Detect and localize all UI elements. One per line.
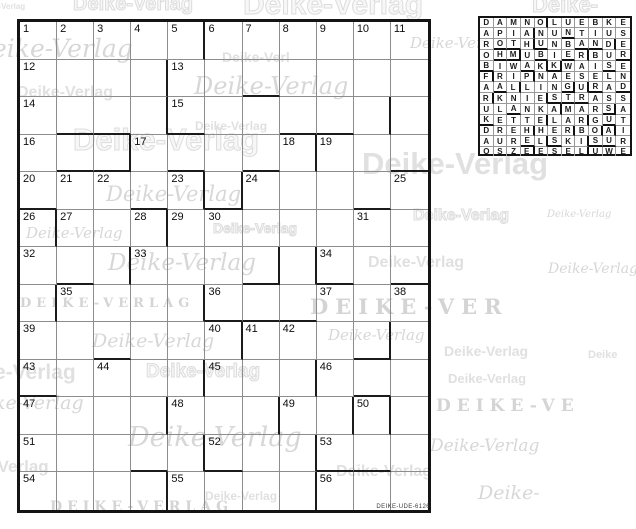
solution-letter: A bbox=[483, 137, 489, 146]
solution-letter: N bbox=[538, 29, 544, 38]
solution-cell: U bbox=[548, 28, 562, 39]
solution-cell: A bbox=[548, 72, 562, 82]
puzzle-cell[interactable]: 47 bbox=[20, 397, 57, 435]
solution-letter: I bbox=[526, 94, 528, 103]
solution-cell: A bbox=[603, 126, 617, 136]
solution-cell: O bbox=[480, 147, 494, 156]
solution-letter: A bbox=[483, 83, 489, 92]
puzzle-cell[interactable] bbox=[243, 435, 280, 473]
puzzle-cell[interactable] bbox=[168, 360, 205, 398]
solution-letter: R bbox=[565, 126, 571, 135]
puzzle-cell[interactable] bbox=[57, 472, 94, 510]
puzzle-cell[interactable]: 20 bbox=[20, 172, 57, 210]
solution-cell: E bbox=[535, 147, 549, 156]
puzzle-cell[interactable] bbox=[57, 397, 94, 435]
puzzle-cell[interactable] bbox=[354, 285, 391, 323]
solution-letter: E bbox=[565, 72, 570, 81]
puzzle-cell[interactable]: 5 bbox=[168, 22, 205, 60]
cell-number: 34 bbox=[320, 248, 332, 260]
puzzle-cell[interactable] bbox=[205, 97, 242, 135]
puzzle-cell[interactable]: 49 bbox=[280, 397, 317, 435]
solution-cell: E bbox=[535, 115, 549, 126]
solution-cell: I bbox=[548, 50, 562, 61]
puzzle-cell[interactable]: 22 bbox=[94, 172, 131, 210]
solution-letter: G bbox=[565, 82, 571, 91]
solution-cell: Z bbox=[507, 147, 521, 156]
puzzle-cell[interactable] bbox=[391, 60, 428, 98]
puzzle-cell[interactable]: 15 bbox=[168, 97, 205, 135]
solution-letter: L bbox=[607, 72, 612, 81]
puzzle-cell[interactable]: 28 bbox=[131, 210, 168, 248]
cell-number: 42 bbox=[283, 323, 295, 335]
solution-letter: S bbox=[552, 136, 557, 145]
puzzle-cell[interactable] bbox=[243, 397, 280, 435]
puzzle-cell[interactable]: 46 bbox=[317, 360, 354, 398]
solution-letter: M bbox=[565, 105, 572, 114]
solution-letter: K bbox=[497, 94, 503, 103]
puzzle-cell[interactable] bbox=[391, 247, 428, 285]
solution-letter: A bbox=[606, 83, 612, 92]
solution-letter: N bbox=[511, 94, 517, 103]
solution-cell: R bbox=[494, 126, 508, 136]
solution-cell: N bbox=[562, 28, 576, 39]
watermark-text: Deike-Verlag bbox=[444, 344, 528, 358]
cell-number: 7 bbox=[246, 23, 252, 35]
watermark-text: DEIKE-VE bbox=[436, 398, 580, 415]
puzzle-cell[interactable]: 30 bbox=[205, 210, 242, 248]
puzzle-cell[interactable]: 50 bbox=[354, 397, 391, 435]
puzzle-cell[interactable] bbox=[168, 135, 205, 173]
solution-cell: H bbox=[535, 126, 549, 136]
puzzle-cell[interactable]: 12 bbox=[20, 60, 57, 98]
solution-letter: E bbox=[538, 116, 543, 125]
solution-letter: U bbox=[552, 29, 558, 38]
puzzle-cell[interactable] bbox=[354, 135, 391, 173]
solution-letter: E bbox=[621, 40, 626, 49]
watermark-text: Deike-Verlag bbox=[448, 372, 526, 385]
solution-letter: R bbox=[497, 126, 503, 135]
puzzle-cell[interactable] bbox=[131, 360, 168, 398]
solution-cell: B bbox=[480, 61, 494, 72]
puzzle-cell[interactable]: 33 bbox=[131, 247, 168, 285]
puzzle-cell[interactable]: 40 bbox=[205, 322, 242, 360]
puzzle-cell[interactable]: 16 bbox=[20, 135, 57, 173]
puzzle-cell[interactable]: 11 bbox=[391, 22, 428, 60]
solution-letter: A bbox=[511, 104, 517, 113]
puzzle-cell[interactable] bbox=[94, 97, 131, 135]
solution-letter: O bbox=[537, 18, 543, 27]
solution-letter: K bbox=[551, 61, 557, 70]
solution-letter: K bbox=[565, 137, 571, 146]
puzzle-cell[interactable]: 13 bbox=[168, 60, 205, 98]
solution-letter: R bbox=[483, 94, 489, 103]
solution-letter: W bbox=[605, 147, 613, 156]
solution-cell: R bbox=[589, 104, 603, 115]
puzzle-cell[interactable] bbox=[243, 97, 280, 135]
puzzle-cell[interactable] bbox=[317, 210, 354, 248]
solution-cell: N bbox=[521, 18, 535, 28]
solution-cell: M bbox=[507, 50, 521, 61]
puzzle-cell[interactable]: 44 bbox=[94, 360, 131, 398]
puzzle-cell[interactable] bbox=[317, 322, 354, 360]
solution-letter: R bbox=[483, 40, 489, 49]
puzzle-cell[interactable] bbox=[20, 285, 57, 323]
puzzle-cell[interactable]: 43 bbox=[20, 360, 57, 398]
solution-cell: S bbox=[494, 147, 508, 156]
solution-letter: A bbox=[606, 126, 612, 135]
solution-letter: U bbox=[524, 51, 530, 60]
puzzle-cell[interactable]: 35 bbox=[57, 285, 94, 323]
puzzle-cell[interactable] bbox=[354, 247, 391, 285]
puzzle-cell[interactable]: 25 bbox=[391, 172, 428, 210]
puzzle-cell[interactable] bbox=[94, 135, 131, 173]
solution-cell: K bbox=[562, 136, 576, 147]
watermark-text: Deike-Verlag bbox=[430, 438, 539, 455]
puzzle-cell[interactable] bbox=[57, 247, 94, 285]
puzzle-cell[interactable]: 18 bbox=[280, 135, 317, 173]
solution-letter: U bbox=[578, 83, 584, 92]
puzzle-cell[interactable] bbox=[94, 472, 131, 510]
puzzle-cell[interactable]: 32 bbox=[20, 247, 57, 285]
puzzle-cell[interactable] bbox=[280, 60, 317, 98]
solution-letter: L bbox=[579, 147, 584, 156]
puzzle-cell[interactable]: 53 bbox=[317, 435, 354, 473]
puzzle-cell[interactable] bbox=[317, 397, 354, 435]
solution-letter: P bbox=[524, 72, 529, 81]
puzzle-cell[interactable]: 51 bbox=[20, 435, 57, 473]
cell-number: 16 bbox=[23, 136, 35, 148]
puzzle-cell[interactable] bbox=[391, 397, 428, 435]
cell-number: 21 bbox=[60, 173, 72, 185]
puzzle-cell[interactable]: 17 bbox=[131, 135, 168, 173]
solution-grid: DAMNOLUEBKEAPIANUNTIUSROTHUNBANDEOHMUBIE… bbox=[478, 16, 632, 156]
puzzle-cell[interactable]: 14 bbox=[20, 97, 57, 135]
puzzle-cell[interactable]: 7 bbox=[243, 22, 280, 60]
solution-letter: D bbox=[483, 126, 489, 135]
puzzle-cell[interactable] bbox=[280, 285, 317, 323]
puzzle-cell[interactable] bbox=[205, 247, 242, 285]
solution-letter: A bbox=[524, 61, 530, 70]
puzzle-cell[interactable]: 41 bbox=[243, 322, 280, 360]
puzzle-cell[interactable] bbox=[243, 135, 280, 173]
puzzle-cell[interactable] bbox=[391, 135, 428, 173]
puzzle-cell[interactable]: 34 bbox=[317, 247, 354, 285]
solution-cell: A bbox=[589, 93, 603, 104]
solution-cell: P bbox=[521, 72, 535, 82]
puzzle-cell[interactable] bbox=[94, 397, 131, 435]
solution-cell: M bbox=[507, 18, 521, 28]
solution-letter: A bbox=[524, 29, 530, 38]
solution-cell: I bbox=[616, 126, 630, 136]
solution-cell: T bbox=[616, 115, 630, 126]
solution-cell: I bbox=[507, 28, 521, 39]
puzzle-cell[interactable] bbox=[94, 247, 131, 285]
solution-letter: A bbox=[552, 72, 558, 81]
puzzle-cell[interactable]: 19 bbox=[317, 135, 354, 173]
puzzle-cell[interactable] bbox=[391, 322, 428, 360]
cell-number: 35 bbox=[60, 286, 72, 298]
solution-letter: N bbox=[552, 83, 558, 92]
puzzle-cell[interactable] bbox=[57, 360, 94, 398]
puzzle-cell[interactable] bbox=[131, 60, 168, 98]
solution-cell: U bbox=[480, 104, 494, 115]
cell-number: 54 bbox=[23, 473, 35, 485]
puzzle-cell[interactable] bbox=[280, 360, 317, 398]
solution-cell: D bbox=[480, 18, 494, 28]
puzzle-cell[interactable] bbox=[280, 472, 317, 510]
puzzle-cell[interactable] bbox=[280, 435, 317, 473]
puzzle-cell[interactable] bbox=[131, 435, 168, 473]
puzzle-cell[interactable]: 39 bbox=[20, 322, 57, 360]
solution-cell: A bbox=[603, 82, 617, 93]
puzzle-cell[interactable]: 24 bbox=[243, 172, 280, 210]
cell-number: 40 bbox=[208, 323, 220, 335]
solution-cell: D bbox=[603, 39, 617, 50]
solution-cell: A bbox=[494, 18, 508, 28]
solution-letter: A bbox=[497, 18, 503, 27]
puzzle-cell[interactable]: 9 bbox=[317, 22, 354, 60]
puzzle-cell[interactable] bbox=[280, 97, 317, 135]
solution-letter: I bbox=[512, 72, 514, 81]
puzzle-cell[interactable] bbox=[317, 60, 354, 98]
puzzle-cell[interactable]: 37 bbox=[317, 285, 354, 323]
watermark-text: Deike- bbox=[532, 0, 598, 16]
solution-cell: O bbox=[480, 50, 494, 61]
solution-letter: E bbox=[497, 116, 502, 125]
solution-letter: B bbox=[579, 126, 585, 135]
solution-cell: I bbox=[521, 93, 535, 104]
solution-letter: F bbox=[483, 72, 488, 81]
puzzle-cell[interactable] bbox=[205, 172, 242, 210]
solution-letter: R bbox=[579, 93, 585, 102]
solution-cell: E bbox=[521, 147, 535, 156]
solution-cell: S bbox=[603, 61, 617, 72]
solution-letter: O bbox=[483, 147, 489, 156]
cell-number: 46 bbox=[320, 361, 332, 373]
solution-letter: M bbox=[510, 50, 517, 59]
puzzle-cell[interactable]: 54 bbox=[20, 472, 57, 510]
solution-cell: A bbox=[480, 136, 494, 147]
solution-letter: E bbox=[593, 72, 598, 81]
puzzle-cell[interactable] bbox=[354, 360, 391, 398]
cell-number: 4 bbox=[134, 23, 140, 35]
puzzle-cell[interactable] bbox=[391, 360, 428, 398]
solution-cell: E bbox=[535, 93, 549, 104]
puzzle-cell[interactable] bbox=[57, 135, 94, 173]
puzzle-cell[interactable]: 31 bbox=[354, 210, 391, 248]
solution-cell: T bbox=[507, 115, 521, 126]
solution-letter: S bbox=[579, 72, 584, 81]
solution-cell: E bbox=[616, 61, 630, 72]
puzzle-cell[interactable] bbox=[354, 435, 391, 473]
puzzle-cell[interactable] bbox=[131, 97, 168, 135]
puzzle-cell[interactable] bbox=[94, 285, 131, 323]
puzzle-cell[interactable] bbox=[243, 472, 280, 510]
solution-cell: N bbox=[507, 93, 521, 104]
solution-cell: K bbox=[494, 93, 508, 104]
solution-cell: P bbox=[494, 28, 508, 39]
solution-cell: L bbox=[494, 104, 508, 115]
puzzle-cell[interactable] bbox=[131, 285, 168, 323]
solution-cell: A bbox=[616, 104, 630, 115]
solution-letter: T bbox=[511, 39, 516, 48]
solution-letter: U bbox=[593, 147, 599, 156]
solution-letter: M bbox=[510, 18, 517, 27]
puzzle-cell[interactable]: 6 bbox=[205, 22, 242, 60]
solution-cell: A bbox=[575, 61, 589, 72]
solution-letter: N bbox=[552, 40, 558, 49]
puzzle-cell[interactable]: 23 bbox=[168, 172, 205, 210]
solution-cell: A bbox=[494, 82, 508, 93]
puzzle-cell[interactable] bbox=[391, 435, 428, 473]
solution-letter: N bbox=[524, 18, 530, 27]
puzzle-cell[interactable]: 10 bbox=[354, 22, 391, 60]
puzzle-cell[interactable]: 45 bbox=[205, 360, 242, 398]
solution-cell: E bbox=[494, 115, 508, 126]
puzzle-cell[interactable] bbox=[57, 322, 94, 360]
puzzle-cell[interactable] bbox=[168, 322, 205, 360]
puzzle-cell[interactable] bbox=[391, 210, 428, 248]
puzzle-cell[interactable]: 4 bbox=[131, 22, 168, 60]
solution-letter: A bbox=[483, 29, 489, 38]
solution-cell: W bbox=[562, 61, 576, 72]
solution-letter: R bbox=[593, 82, 599, 91]
solution-cell: S bbox=[548, 136, 562, 147]
solution-cell: N bbox=[616, 72, 630, 82]
watermark-text: Deike-Verlag bbox=[547, 210, 611, 220]
puzzle-cell[interactable] bbox=[168, 247, 205, 285]
solution-letter: S bbox=[497, 147, 502, 156]
watermark-text: Deike-Verlag bbox=[243, 0, 423, 20]
solution-cell: E bbox=[562, 72, 576, 82]
puzzle-cell[interactable] bbox=[131, 472, 168, 510]
puzzle-cell[interactable] bbox=[280, 210, 317, 248]
puzzle-cell[interactable] bbox=[243, 360, 280, 398]
puzzle-cell[interactable]: 3 bbox=[94, 22, 131, 60]
puzzle-cell[interactable] bbox=[317, 172, 354, 210]
solution-cell: U bbox=[603, 115, 617, 126]
puzzle-cell[interactable] bbox=[243, 60, 280, 98]
puzzle-cell[interactable] bbox=[57, 60, 94, 98]
puzzle-cell[interactable] bbox=[243, 210, 280, 248]
puzzle-cell[interactable] bbox=[205, 135, 242, 173]
solution-cell: I bbox=[589, 28, 603, 39]
solution-letter: E bbox=[511, 126, 516, 135]
solution-letter: T bbox=[525, 116, 530, 125]
solution-letter: H bbox=[497, 50, 503, 59]
puzzle-cell[interactable]: 27 bbox=[57, 210, 94, 248]
solution-cell: O bbox=[535, 18, 549, 28]
puzzle-cell[interactable] bbox=[354, 172, 391, 210]
puzzle-cell[interactable]: 2 bbox=[57, 22, 94, 60]
puzzle-cell[interactable] bbox=[280, 172, 317, 210]
puzzle-cell[interactable] bbox=[205, 397, 242, 435]
cell-number: 1 bbox=[23, 23, 29, 35]
puzzle-cell[interactable]: 29 bbox=[168, 210, 205, 248]
solution-letter: A bbox=[579, 105, 585, 114]
puzzle-cell[interactable] bbox=[57, 435, 94, 473]
solution-cell: U bbox=[562, 18, 576, 28]
cell-number: 44 bbox=[97, 361, 109, 373]
puzzle-cell[interactable]: 26 bbox=[20, 210, 57, 248]
puzzle-cell[interactable] bbox=[131, 172, 168, 210]
puzzle-cell[interactable] bbox=[243, 247, 280, 285]
cell-number: 43 bbox=[23, 361, 35, 373]
solution-cell: E bbox=[507, 126, 521, 136]
solution-cell: B bbox=[589, 18, 603, 28]
solution-letter: S bbox=[606, 94, 611, 103]
solution-letter: N bbox=[538, 72, 544, 81]
solution-letter: H bbox=[524, 126, 530, 135]
puzzle-cell[interactable] bbox=[131, 397, 168, 435]
solution-letter: I bbox=[499, 62, 501, 71]
puzzle-cell[interactable] bbox=[168, 285, 205, 323]
solution-cell: B bbox=[535, 50, 549, 61]
solution-cell: U bbox=[575, 82, 589, 93]
puzzle-cell[interactable]: 1 bbox=[20, 22, 57, 60]
puzzle-cell[interactable]: 48 bbox=[168, 397, 205, 435]
cell-number: 11 bbox=[394, 23, 405, 35]
puzzle-cell[interactable] bbox=[94, 60, 131, 98]
solution-cell: E bbox=[562, 147, 576, 156]
solution-letter: R bbox=[620, 50, 626, 59]
puzzle-cell[interactable] bbox=[94, 322, 131, 360]
solution-cell: E bbox=[616, 39, 630, 50]
puzzle-cell[interactable] bbox=[94, 435, 131, 473]
solution-letter: D bbox=[620, 82, 626, 91]
puzzle-cell[interactable] bbox=[94, 210, 131, 248]
puzzle-cell[interactable] bbox=[354, 60, 391, 98]
puzzle-cell[interactable] bbox=[205, 60, 242, 98]
solution-cell: N bbox=[521, 104, 535, 115]
puzzle-cell[interactable] bbox=[354, 322, 391, 360]
puzzle-cell[interactable] bbox=[280, 247, 317, 285]
solution-cell: K bbox=[480, 115, 494, 126]
solution-cell: D bbox=[480, 126, 494, 136]
solution-cell: B bbox=[589, 50, 603, 61]
solution-cell: L bbox=[535, 136, 549, 147]
watermark-text: Deike-Verlag bbox=[548, 262, 636, 276]
puzzle-cell[interactable] bbox=[57, 97, 94, 135]
puzzle-cell[interactable]: 55 bbox=[168, 472, 205, 510]
solution-letter: W bbox=[510, 62, 518, 71]
puzzle-cell[interactable]: 8 bbox=[280, 22, 317, 60]
cell-number: 23 bbox=[171, 173, 183, 185]
solution-letter: R bbox=[578, 116, 584, 125]
puzzle-cell[interactable]: 38 bbox=[391, 285, 428, 323]
puzzle-cell[interactable] bbox=[354, 97, 391, 135]
puzzle-cell[interactable]: 36 bbox=[205, 285, 242, 323]
puzzle-cell[interactable] bbox=[205, 472, 242, 510]
cell-number: 52 bbox=[208, 436, 220, 448]
cell-number: 9 bbox=[320, 23, 326, 35]
solution-letter: S bbox=[593, 136, 598, 145]
solution-cell: A bbox=[548, 104, 562, 115]
puzzle-cell[interactable]: 42 bbox=[280, 322, 317, 360]
cell-number: 24 bbox=[246, 173, 258, 185]
puzzle-cell[interactable]: 52 bbox=[205, 435, 242, 473]
puzzle-cell[interactable] bbox=[391, 97, 428, 135]
solution-letter: T bbox=[511, 116, 516, 125]
cell-number: 53 bbox=[320, 436, 332, 448]
puzzle-cell[interactable] bbox=[317, 97, 354, 135]
cell-number: 2 bbox=[60, 23, 66, 35]
puzzle-cell[interactable] bbox=[131, 322, 168, 360]
puzzle-cell[interactable] bbox=[168, 435, 205, 473]
puzzle-cell[interactable] bbox=[243, 285, 280, 323]
puzzle-cell[interactable]: 21 bbox=[57, 172, 94, 210]
solution-letter: G bbox=[592, 116, 598, 125]
